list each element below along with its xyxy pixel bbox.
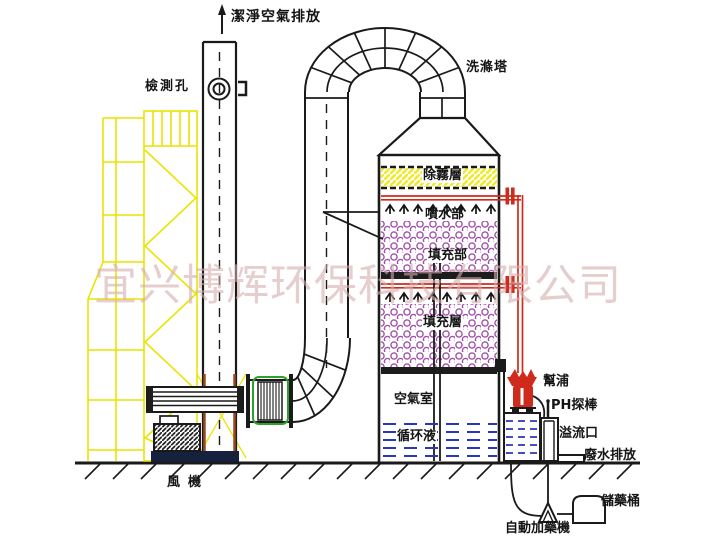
label-dosing-machine: 自動加藥機 bbox=[505, 522, 570, 536]
label-demister: 除霧層 bbox=[422, 169, 463, 183]
packing-support-lower bbox=[381, 367, 497, 374]
flex-connector bbox=[246, 374, 293, 428]
label-overflow-port: 溢流口 bbox=[559, 427, 598, 441]
watermark-text: 宜兴博辉环保科技有限公司 bbox=[94, 251, 622, 313]
packing-bed-lower bbox=[381, 304, 497, 367]
label-fan: 風機 bbox=[167, 476, 209, 490]
equipment-base bbox=[151, 451, 239, 462]
label-packing-lower: 填充層 bbox=[422, 316, 463, 330]
fan-inlet-duct bbox=[250, 338, 350, 422]
label-ph-probe: PH探棒 bbox=[551, 399, 597, 413]
ground-line bbox=[75, 463, 640, 479]
inspection-port-symbol bbox=[209, 79, 247, 100]
label-wastewater-discharge: 廢水排放 bbox=[584, 449, 636, 463]
ph-probe-icon bbox=[546, 399, 550, 419]
fan-assembly bbox=[147, 387, 243, 451]
fan-motor bbox=[154, 424, 200, 451]
label-pump: 幫浦 bbox=[543, 375, 569, 389]
dosing-system bbox=[511, 464, 605, 523]
label-clean-air-discharge: 潔淨空氣排放 bbox=[231, 10, 321, 25]
exhaust-arrow-icon bbox=[218, 4, 226, 34]
label-chemical-tank: 儲藥桶 bbox=[601, 495, 640, 509]
label-spray-section: 噴水部 bbox=[425, 208, 464, 222]
scrubber-system-diagram: 潔淨空氣排放 檢測孔 洗滌塔 除霧層 噴水部 填充部 填充層 空氣室 循环液 風… bbox=[0, 0, 720, 540]
label-inspection-port: 檢測孔 bbox=[145, 80, 190, 94]
tower-hood bbox=[379, 118, 499, 155]
label-air-chamber: 空氣室 bbox=[394, 393, 433, 407]
label-scrubber-tower: 洗滌塔 bbox=[466, 61, 508, 75]
wastewater-drain-pipe bbox=[558, 455, 584, 463]
label-circulating-liquid: 循环液 bbox=[396, 430, 437, 444]
circulation-pump bbox=[507, 369, 537, 414]
